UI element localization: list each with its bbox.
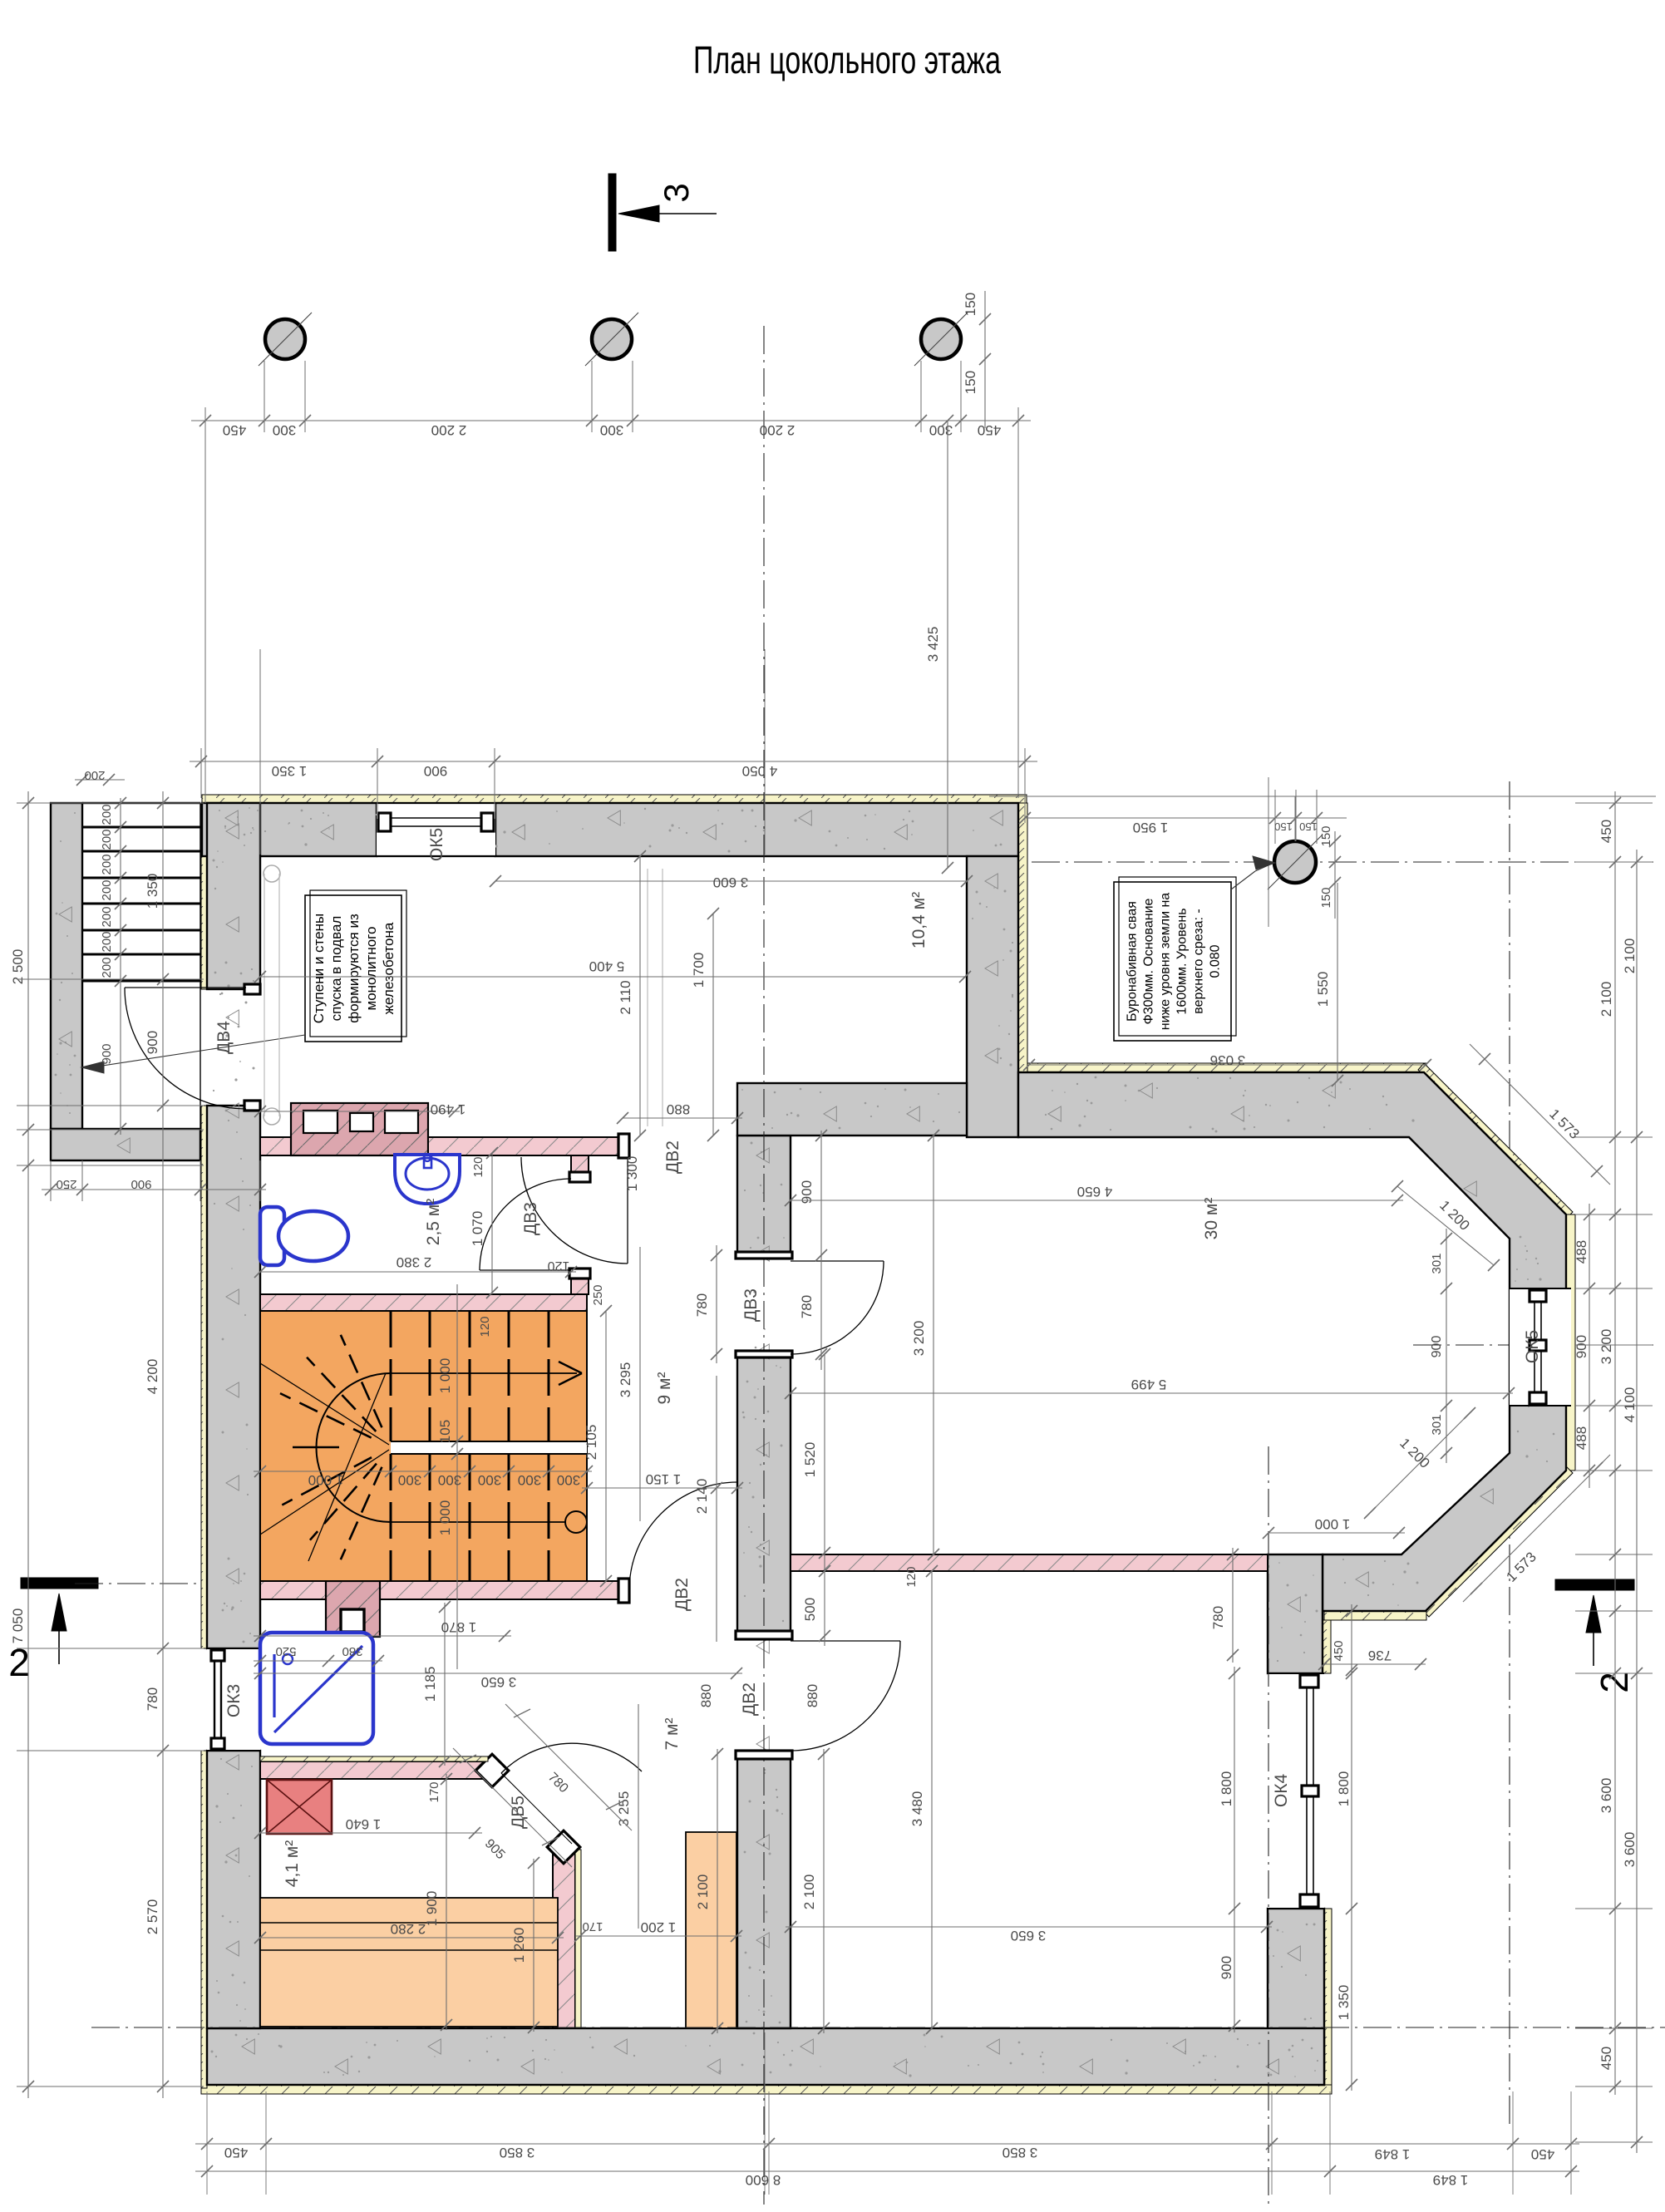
- svg-text:880: 880: [805, 1684, 820, 1707]
- svg-text:500: 500: [802, 1598, 818, 1621]
- svg-text:780: 780: [799, 1295, 815, 1318]
- svg-text:монолитного: монолитного: [363, 927, 379, 1011]
- svg-text:2 105: 2 105: [584, 1425, 599, 1461]
- svg-text:488: 488: [1574, 1426, 1589, 1450]
- svg-text:ОК3: ОК3: [224, 1684, 244, 1717]
- svg-text:2 110: 2 110: [618, 980, 633, 1014]
- svg-text:1 640: 1 640: [346, 1816, 382, 1832]
- svg-text:1 849: 1 849: [1433, 2172, 1469, 2188]
- svg-text:150: 150: [963, 293, 978, 316]
- svg-text:1 070: 1 070: [470, 1211, 485, 1247]
- svg-text:780: 780: [1210, 1606, 1226, 1629]
- svg-text:200: 200: [84, 768, 105, 782]
- svg-text:ОК5: ОК5: [1523, 1330, 1542, 1363]
- svg-text:780: 780: [145, 1687, 160, 1711]
- svg-text:1 800: 1 800: [1336, 1771, 1352, 1807]
- svg-text:ДВ5: ДВ5: [509, 1796, 528, 1829]
- svg-text:900: 900: [131, 1177, 151, 1191]
- svg-text:ниже уровня земли на: ниже уровня земли на: [1159, 893, 1173, 1030]
- svg-text:105: 105: [437, 1420, 453, 1443]
- svg-text:2 380: 2 380: [397, 1254, 432, 1270]
- svg-text:150: 150: [963, 371, 978, 394]
- svg-text:Буронабивная свая: Буронабивная свая: [1126, 901, 1140, 1022]
- svg-text:450: 450: [1531, 2146, 1554, 2162]
- svg-text:520: 520: [275, 1644, 296, 1658]
- svg-text:1 550: 1 550: [1315, 972, 1331, 1007]
- svg-text:1 950: 1 950: [1133, 820, 1169, 835]
- svg-text:3 480: 3 480: [909, 1791, 925, 1827]
- svg-text:300: 300: [438, 1472, 461, 1488]
- svg-text:300: 300: [398, 1472, 421, 1488]
- svg-text:1 000: 1 000: [308, 1472, 344, 1488]
- svg-text:880: 880: [698, 1684, 714, 1707]
- svg-text:2,5 м²: 2,5 м²: [424, 1199, 443, 1245]
- svg-text:900: 900: [100, 1043, 114, 1064]
- svg-text:2 100: 2 100: [801, 1875, 817, 1910]
- svg-text:780: 780: [694, 1293, 710, 1317]
- svg-text:8 600: 8 600: [746, 2172, 781, 2188]
- svg-text:1 150: 1 150: [646, 1471, 682, 1487]
- svg-text:верхнего среза: -: верхнего среза: -: [1192, 909, 1206, 1013]
- svg-text:1 000: 1 000: [437, 1358, 453, 1394]
- svg-text:3 650: 3 650: [1011, 1928, 1047, 1944]
- svg-text:Ф300мм. Основание: Ф300мм. Основание: [1142, 898, 1156, 1024]
- svg-text:170: 170: [427, 1781, 441, 1802]
- svg-text:250: 250: [591, 1284, 605, 1305]
- svg-text:450: 450: [978, 422, 1001, 438]
- svg-text:формируются из: формируются из: [346, 914, 362, 1023]
- svg-text:300: 300: [273, 422, 296, 438]
- svg-text:900: 900: [145, 1031, 160, 1054]
- svg-text:900: 900: [424, 763, 447, 779]
- svg-text:4 100: 4 100: [1622, 1387, 1638, 1423]
- svg-text:5 499: 5 499: [1131, 1377, 1167, 1392]
- svg-text:30 м²: 30 м²: [1202, 1198, 1221, 1240]
- svg-text:120: 120: [904, 1566, 919, 1587]
- svg-text:150: 150: [1299, 820, 1318, 833]
- svg-text:1 350: 1 350: [272, 763, 308, 779]
- svg-text:450: 450: [224, 2145, 248, 2160]
- svg-text:880: 880: [667, 1101, 690, 1117]
- svg-text:3 850: 3 850: [500, 2145, 535, 2160]
- svg-text:Ступени и стены: Ступени и стены: [311, 914, 327, 1023]
- svg-text:План цокольного этажа: План цокольного этажа: [693, 38, 1001, 81]
- svg-text:1600мм. Уровень: 1600мм. Уровень: [1175, 908, 1190, 1014]
- svg-text:150: 150: [1319, 825, 1333, 846]
- svg-text:4 650: 4 650: [1077, 1184, 1113, 1200]
- svg-text:4 200: 4 200: [145, 1359, 160, 1395]
- svg-text:150: 150: [1319, 887, 1333, 908]
- svg-text:4,1 м²: 4,1 м²: [283, 1840, 302, 1887]
- svg-text:ОК4: ОК4: [1272, 1774, 1291, 1808]
- svg-text:1 200: 1 200: [641, 1919, 677, 1935]
- svg-text:1 849: 1 849: [1375, 2146, 1411, 2162]
- svg-text:300: 300: [929, 422, 953, 438]
- svg-text:4 050: 4 050: [742, 763, 778, 779]
- svg-text:3 295: 3 295: [618, 1362, 633, 1398]
- svg-text:2 100: 2 100: [1598, 982, 1614, 1017]
- svg-text:2: 2: [8, 1641, 30, 1684]
- svg-text:2 570: 2 570: [145, 1899, 160, 1935]
- svg-text:3 036: 3 036: [1210, 1052, 1246, 1068]
- svg-text:3: 3: [657, 183, 696, 202]
- svg-text:450: 450: [223, 422, 246, 438]
- svg-text:2 100: 2 100: [1622, 938, 1638, 974]
- svg-text:железобетона: железобетона: [381, 922, 397, 1014]
- svg-text:3 200: 3 200: [1598, 1329, 1614, 1365]
- svg-text:300: 300: [518, 1472, 541, 1488]
- svg-text:1 870: 1 870: [441, 1619, 477, 1635]
- svg-text:3 255: 3 255: [616, 1791, 632, 1827]
- svg-text:3 600: 3 600: [1622, 1832, 1638, 1868]
- svg-text:120: 120: [471, 1156, 485, 1177]
- svg-text:ОК5: ОК5: [427, 828, 446, 861]
- svg-text:150: 150: [1274, 820, 1293, 833]
- svg-text:ДВ2: ДВ2: [663, 1140, 682, 1174]
- svg-text:ДВ2: ДВ2: [672, 1578, 692, 1611]
- svg-text:1 350: 1 350: [145, 874, 160, 909]
- svg-text:3 600: 3 600: [1598, 1778, 1614, 1814]
- svg-text:1 185: 1 185: [422, 1667, 438, 1702]
- svg-text:170: 170: [582, 1919, 603, 1934]
- svg-text:5 400: 5 400: [589, 958, 625, 974]
- svg-text:200: 200: [100, 804, 114, 825]
- svg-text:спуска в подвал: спуска в подвал: [328, 916, 344, 1022]
- svg-text:900: 900: [1430, 1336, 1444, 1358]
- svg-text:900: 900: [1574, 1335, 1589, 1358]
- svg-text:1 000: 1 000: [437, 1500, 453, 1536]
- svg-text:1 800: 1 800: [1219, 1771, 1234, 1807]
- svg-text:1 520: 1 520: [802, 1442, 818, 1478]
- svg-text:2 200: 2 200: [431, 422, 467, 438]
- svg-text:2 200: 2 200: [760, 422, 796, 438]
- svg-text:200: 200: [100, 829, 114, 850]
- svg-text:301: 301: [1430, 1414, 1444, 1435]
- svg-text:380: 380: [342, 1644, 362, 1658]
- svg-text:2 100: 2 100: [695, 1875, 711, 1910]
- svg-text:3 850: 3 850: [1002, 2145, 1038, 2160]
- svg-text:ДВ3: ДВ3: [741, 1288, 761, 1322]
- svg-text:300: 300: [557, 1472, 580, 1488]
- svg-text:900: 900: [1219, 1956, 1234, 1979]
- svg-text:3 200: 3 200: [911, 1321, 927, 1357]
- svg-text:2 140: 2 140: [694, 1479, 710, 1515]
- svg-text:0.080: 0.080: [1209, 944, 1223, 978]
- svg-text:1 300: 1 300: [624, 1156, 640, 1192]
- svg-text:1 000: 1 000: [1315, 1516, 1351, 1532]
- svg-text:450: 450: [1598, 2047, 1614, 2070]
- svg-text:200: 200: [100, 854, 114, 874]
- svg-text:1 260: 1 260: [511, 1928, 527, 1963]
- svg-text:488: 488: [1574, 1240, 1589, 1264]
- svg-text:736: 736: [1368, 1648, 1392, 1663]
- svg-text:450: 450: [1598, 820, 1614, 843]
- svg-text:450: 450: [1332, 1640, 1346, 1661]
- svg-text:2 280: 2 280: [391, 1921, 426, 1937]
- svg-text:3 600: 3 600: [713, 874, 749, 890]
- svg-text:9 м²: 9 м²: [655, 1372, 674, 1405]
- svg-text:1 490: 1 490: [431, 1101, 466, 1117]
- svg-text:200: 200: [100, 906, 114, 927]
- svg-text:200: 200: [100, 879, 114, 900]
- svg-text:1 900: 1 900: [424, 1891, 440, 1927]
- svg-text:ДВ3: ДВ3: [521, 1202, 540, 1235]
- svg-text:120: 120: [548, 1259, 570, 1273]
- svg-text:300: 300: [600, 422, 623, 438]
- svg-text:3 650: 3 650: [481, 1674, 517, 1690]
- svg-text:3 425: 3 425: [925, 627, 941, 663]
- svg-text:7 050: 7 050: [10, 1609, 26, 1644]
- svg-text:1 350: 1 350: [1336, 1985, 1352, 2021]
- svg-text:1 700: 1 700: [691, 953, 707, 988]
- svg-text:200: 200: [100, 931, 114, 952]
- svg-text:250: 250: [56, 1177, 76, 1191]
- svg-text:200: 200: [100, 957, 114, 978]
- svg-text:301: 301: [1430, 1253, 1444, 1274]
- svg-text:7 м²: 7 м²: [663, 1718, 682, 1751]
- svg-text:ДВ4: ДВ4: [214, 1021, 234, 1054]
- svg-text:10,4 м²: 10,4 м²: [909, 892, 929, 948]
- svg-text:ДВ2: ДВ2: [740, 1682, 759, 1716]
- svg-text:120: 120: [478, 1316, 492, 1337]
- svg-text:300: 300: [478, 1472, 501, 1488]
